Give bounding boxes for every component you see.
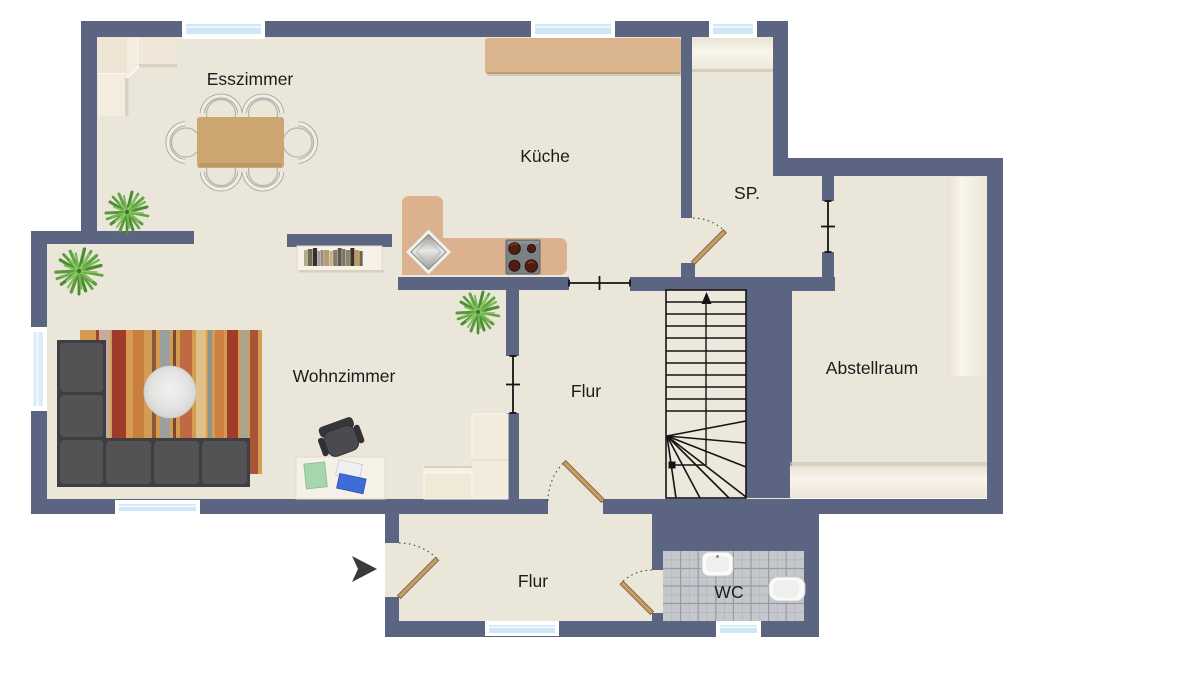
svg-text:Flur: Flur xyxy=(518,571,548,591)
svg-text:Flur: Flur xyxy=(571,381,601,401)
svg-text:SP.: SP. xyxy=(734,183,760,203)
svg-text:WC: WC xyxy=(714,582,743,602)
svg-text:Wohnzimmer: Wohnzimmer xyxy=(293,366,396,386)
svg-text:Esszimmer: Esszimmer xyxy=(207,69,294,89)
svg-text:Küche: Küche xyxy=(520,146,570,166)
svg-text:Abstellraum: Abstellraum xyxy=(826,358,918,378)
